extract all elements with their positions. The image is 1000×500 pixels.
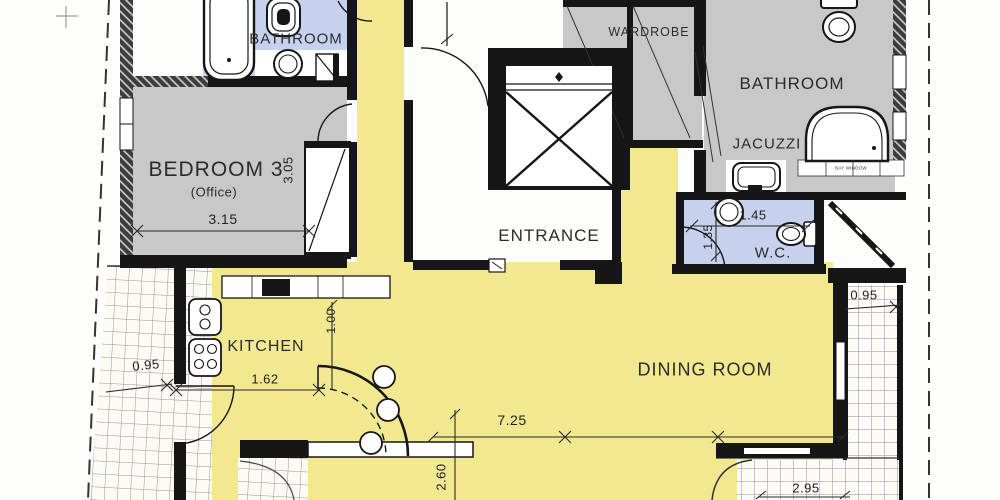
room-label-bathroom-left: BATHROOM [249, 31, 343, 48]
closet [305, 142, 350, 258]
toilet-icon [821, 0, 857, 42]
jacuzzi-icon [806, 107, 888, 161]
room-label-wc: W.C. [755, 245, 792, 262]
dim-kitchen-depth: 1.00 [324, 308, 338, 333]
dim-kitchen-counter: 1.62 [251, 372, 278, 387]
room-label-dining: DINING ROOM [638, 360, 773, 381]
room-label-jacuzzi: JACUZZI [733, 136, 802, 153]
elevator-shaft [506, 66, 612, 186]
shower-hatch [316, 54, 339, 81]
dim-bedroom-depth: 3.05 [281, 156, 296, 183]
kitchen-counter [222, 276, 390, 298]
bathtub-icon [204, 0, 254, 80]
dim-balcony-left: 0.95 [132, 356, 161, 374]
bay-window-label: BAY WINDOW [835, 166, 867, 171]
sink-icon [733, 163, 780, 193]
room-label-bedroom3-note: (Office) [191, 185, 237, 200]
room-label-bathroom-right: BATHROOM [740, 74, 845, 94]
room-label-entrance: ENTRANCE [498, 226, 600, 246]
kitchen-sink-icon [189, 299, 221, 335]
dim-balcony-bottom: 2.95 [792, 481, 819, 496]
corner-marks [56, 6, 78, 28]
room-label-kitchen: KITCHEN [227, 338, 304, 356]
dim-living-depth: 2.60 [434, 463, 449, 490]
room-label-wardrobe: WARDROBE [608, 25, 689, 39]
dim-wc-width: 1.45 [739, 208, 766, 223]
floor-plan: BATHROOM BEDROOM 3 (Office) 3.15 3.05 EN… [0, 0, 1000, 500]
dim-balcony-right: 0.95 [850, 288, 877, 303]
stove-icon [189, 339, 221, 376]
sink-icon [274, 50, 302, 78]
dim-bedroom-width: 3.15 [208, 211, 237, 227]
dim-living-width: 7.25 [497, 412, 526, 428]
room-label-bedroom3: BEDROOM 3 [148, 158, 283, 182]
dim-wc-depth: 1.35 [701, 224, 715, 249]
